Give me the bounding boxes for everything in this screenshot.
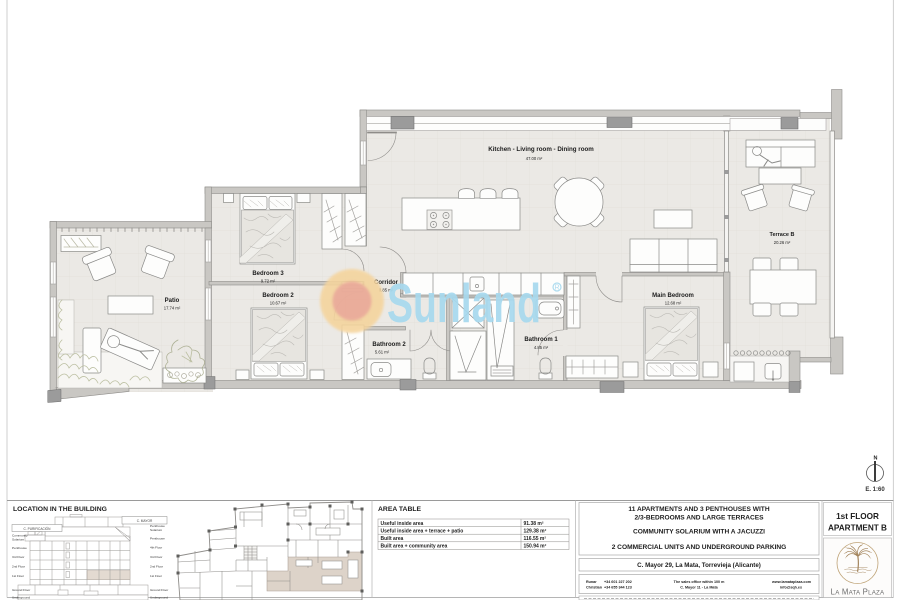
svg-text:Bathroom 2: Bathroom 2 — [372, 342, 406, 348]
svg-text:Useful inside area + terrace +: Useful inside area + terrace + patio — [381, 528, 464, 534]
svg-text:Ground Floor: Ground Floor — [150, 588, 168, 592]
svg-text:2nd Floor: 2nd Floor — [150, 565, 163, 569]
svg-text:Main Bedroom: Main Bedroom — [652, 293, 694, 299]
svg-text:Underground: Underground — [12, 596, 30, 600]
svg-text:Bedroom 2: Bedroom 2 — [262, 293, 294, 299]
svg-text:11 APARTMENTS AND 3 PENTHOUSES: 11 APARTMENTS AND 3 PENTHOUSES WITH — [628, 506, 769, 513]
svg-text:Built area: Built area — [381, 536, 404, 542]
svg-text:Built area + community area: Built area + community area — [381, 544, 448, 550]
svg-text:LOCATION IN THE BUILDING: LOCATION IN THE BUILDING — [13, 506, 107, 513]
svg-text:E. 1:60: E. 1:60 — [865, 487, 885, 493]
svg-text:info@sqh.es: info@sqh.es — [780, 586, 802, 590]
svg-text:3rd Floor: 3rd Floor — [150, 555, 162, 559]
svg-text:Patio: Patio — [165, 298, 180, 304]
svg-text:Terrace B: Terrace B — [770, 232, 795, 238]
svg-text:2 COMMERCIAL UNITS AND UNDERGR: 2 COMMERCIAL UNITS AND UNDERGROUND PARKI… — [612, 544, 787, 551]
svg-text:2/3-BEDROOMS AND LARGE TERRACE: 2/3-BEDROOMS AND LARGE TERRACES — [634, 515, 764, 522]
svg-text:C. PURIFICACIÓN: C. PURIFICACIÓN — [24, 526, 52, 531]
svg-text:Bedroom 3: Bedroom 3 — [252, 271, 284, 277]
svg-text:LA MATA PLAZA: LA MATA PLAZA — [831, 588, 885, 597]
svg-text:10.67 m²: 10.67 m² — [270, 301, 287, 306]
svg-text:20.26 m²: 20.26 m² — [774, 240, 791, 245]
svg-text:Penthouse: Penthouse — [12, 546, 27, 550]
svg-text:Runar: Runar — [586, 580, 597, 584]
svg-text:1st FLOOR: 1st FLOOR — [836, 512, 879, 521]
svg-text:47.00 m²: 47.00 m² — [526, 156, 543, 161]
svg-text:R: R — [554, 285, 559, 292]
svg-text:Christian: Christian — [586, 586, 603, 590]
svg-text:+34 601 227 202: +34 601 227 202 — [604, 580, 632, 584]
svg-text:N: N — [874, 456, 878, 462]
svg-text:Kitchen - Living room - Dining: Kitchen - Living room - Dining room — [488, 146, 594, 153]
svg-text:150.94 m²: 150.94 m² — [524, 544, 547, 550]
svg-text:Bathroom 1: Bathroom 1 — [524, 337, 558, 343]
svg-text:+34 655 344 123: +34 655 344 123 — [604, 586, 632, 590]
svg-text:116.55 m²: 116.55 m² — [524, 536, 547, 542]
svg-text:APARTMENT B: APARTMENT B — [828, 524, 887, 533]
svg-text:5.61 m²: 5.61 m² — [375, 350, 390, 355]
svg-text:4th Floor: 4th Floor — [150, 546, 162, 550]
svg-text:Useful inside area: Useful inside area — [381, 521, 424, 527]
svg-text:Penthouse: Penthouse — [150, 537, 165, 541]
svg-text:Solarium: Solarium — [12, 538, 25, 542]
svg-text:C. Mayor 29, La Mata, Torrevie: C. Mayor 29, La Mata, Torrevieja (Alican… — [637, 562, 761, 569]
svg-text:www.lamataplaza.com: www.lamataplaza.com — [771, 580, 812, 584]
svg-text:9.72 m²: 9.72 m² — [261, 279, 276, 284]
svg-text:AREA TABLE: AREA TABLE — [378, 506, 422, 513]
svg-text:2nd Floor: 2nd Floor — [12, 565, 25, 569]
svg-text:Sunland: Sunland — [387, 272, 541, 334]
svg-text:The sales office within 100 m: The sales office within 100 m — [674, 580, 726, 584]
svg-text:4.85 m²: 4.85 m² — [534, 345, 549, 350]
svg-text:C. MAYOR: C. MAYOR — [137, 519, 153, 523]
svg-text:Ground Floor: Ground Floor — [12, 588, 30, 592]
svg-text:COMMUNITY SOLARIUM WITH A JACU: COMMUNITY SOLARIUM WITH A JACUZZI — [633, 529, 765, 536]
svg-text:129.38 m²: 129.38 m² — [524, 528, 547, 534]
svg-text:Solarium: Solarium — [150, 528, 163, 532]
svg-text:17.74 m²: 17.74 m² — [164, 306, 181, 311]
svg-text:12.68 m²: 12.68 m² — [665, 301, 682, 306]
svg-text:Underground: Underground — [150, 596, 168, 600]
svg-text:1st Floor: 1st Floor — [150, 574, 162, 578]
svg-text:C. Mayor 11 - La Mata: C. Mayor 11 - La Mata — [680, 586, 718, 590]
svg-text:1st Floor: 1st Floor — [12, 574, 24, 578]
svg-text:3rd Floor: 3rd Floor — [12, 555, 24, 559]
svg-text:91.38 m²: 91.38 m² — [524, 521, 544, 527]
